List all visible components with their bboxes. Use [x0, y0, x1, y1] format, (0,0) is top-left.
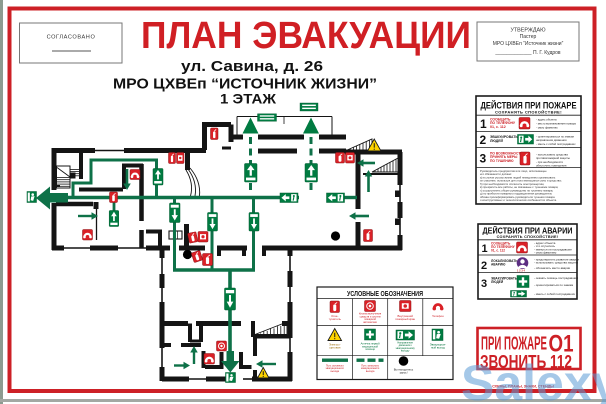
svg-text:ул. Савина, д. 26: ул. Савина, д. 26 — [181, 59, 323, 75]
svg-text:- иметь с собой пострадавших: - иметь с собой пострадавших — [534, 292, 575, 296]
svg-text:3: 3 — [481, 278, 487, 290]
svg-text:1: 1 — [482, 243, 488, 255]
svg-text:Телефон: Телефон — [432, 314, 444, 318]
svg-text:- оказать помощь пострадавшим: - оказать помощь пострадавшим — [534, 276, 578, 280]
svg-text:ЛЮДЕЙ: ЛЮДЕЙ — [491, 280, 504, 284]
svg-text:тушитель: тушитель — [329, 317, 342, 321]
svg-text:- свою фамилию: - свою фамилию — [534, 251, 557, 255]
svg-text:ПЛАН ЭВАКУАЦИИ: ПЛАН ЭВАКУАЦИИ — [141, 15, 471, 57]
svg-text:- использовать средства защиты: - использовать средства защиты — [534, 261, 578, 265]
svg-text:УТВЕРЖДАЮ: УТВЕРЖДАЮ — [510, 28, 546, 34]
svg-text:СОХРАНЯТЬ СПОКОЙСТВИЕ!: СОХРАНЯТЬ СПОКОЙСТВИЕ! — [497, 235, 559, 239]
svg-text:ДЕЙСТВИЯ ПРИ АВАРИИ: ДЕЙСТВИЯ ПРИ АВАРИИ — [483, 225, 573, 236]
svg-text:01, с. 112: 01, с. 112 — [491, 249, 505, 253]
svg-text:- обозначить место аварии: - обозначить место аварии — [534, 266, 571, 270]
svg-text:пожарный кран: пожарный кран — [395, 317, 415, 321]
svg-text:автоматики: автоматики — [363, 321, 377, 324]
svg-text:1 ЭТАЖ: 1 ЭТАЖ — [220, 91, 276, 107]
svg-text:выхода: выхода — [331, 370, 340, 373]
svg-text:3: 3 — [480, 152, 487, 166]
svg-text:УСЛОВНЫЕ ОБОЗНАЧЕНИЯ: УСЛОВНЫЕ ОБОЗНАЧЕНИЯ — [347, 291, 423, 298]
svg-text:1 2 3 4: 1 2 3 4 — [517, 269, 525, 273]
svg-text:Salexy: Salexy — [461, 355, 606, 404]
svg-text:ный выход: ный выход — [431, 346, 445, 350]
svg-text:_____________ П. Г. Кудров: _____________ П. Г. Кудров — [494, 50, 561, 56]
svg-text:щитовая: щитовая — [329, 346, 341, 350]
svg-text:ПРИ ПОЖАРЕ: ПРИ ПОЖАРЕ — [481, 334, 547, 354]
svg-text:выхода: выхода — [366, 370, 375, 373]
svg-text:2: 2 — [481, 260, 487, 272]
svg-text:МРО ЦХВЕп “Источник жизни”: МРО ЦХВЕп “Источник жизни” — [493, 41, 564, 47]
svg-text:здесь!: здесь! — [399, 371, 407, 375]
svg-text:2: 2 — [480, 133, 487, 147]
svg-text:о конструктивных и технологиче: о конструктивных и технологических особе… — [480, 198, 557, 202]
svg-text:ЛЮДЕЙ: ЛЮДЕЙ — [490, 139, 503, 143]
svg-text:- иметь с собой пострадавших: - иметь с собой пострадавших — [536, 142, 576, 146]
svg-text:1: 1 — [480, 117, 487, 131]
svg-text:- свою фамилию: - свою фамилию — [536, 125, 558, 129]
svg-text:01, с. 112: 01, с. 112 — [490, 125, 506, 129]
svg-text:помощи: помощи — [365, 348, 375, 351]
svg-text:- ориентироваться по знакам: - ориентироваться по знакам — [534, 283, 573, 287]
svg-text:обесточить помещения: обесточить помещения — [536, 164, 567, 168]
svg-text:выходу: выходу — [401, 350, 410, 353]
svg-text:СОХРАНЯТЬ СПОКОЙСТВИЕ!: СОХРАНЯТЬ СПОКОЙСТВИЕ! — [495, 110, 562, 115]
svg-text:ПО ТУШЕНИЮ: ПО ТУШЕНИЮ — [490, 159, 514, 163]
svg-text:Пастер: Пастер — [520, 34, 537, 40]
svg-text:АВАРИЮ: АВАРИЮ — [491, 263, 506, 267]
svg-text:СОГЛАСОВАНО: СОГЛАСОВАНО — [47, 35, 96, 41]
